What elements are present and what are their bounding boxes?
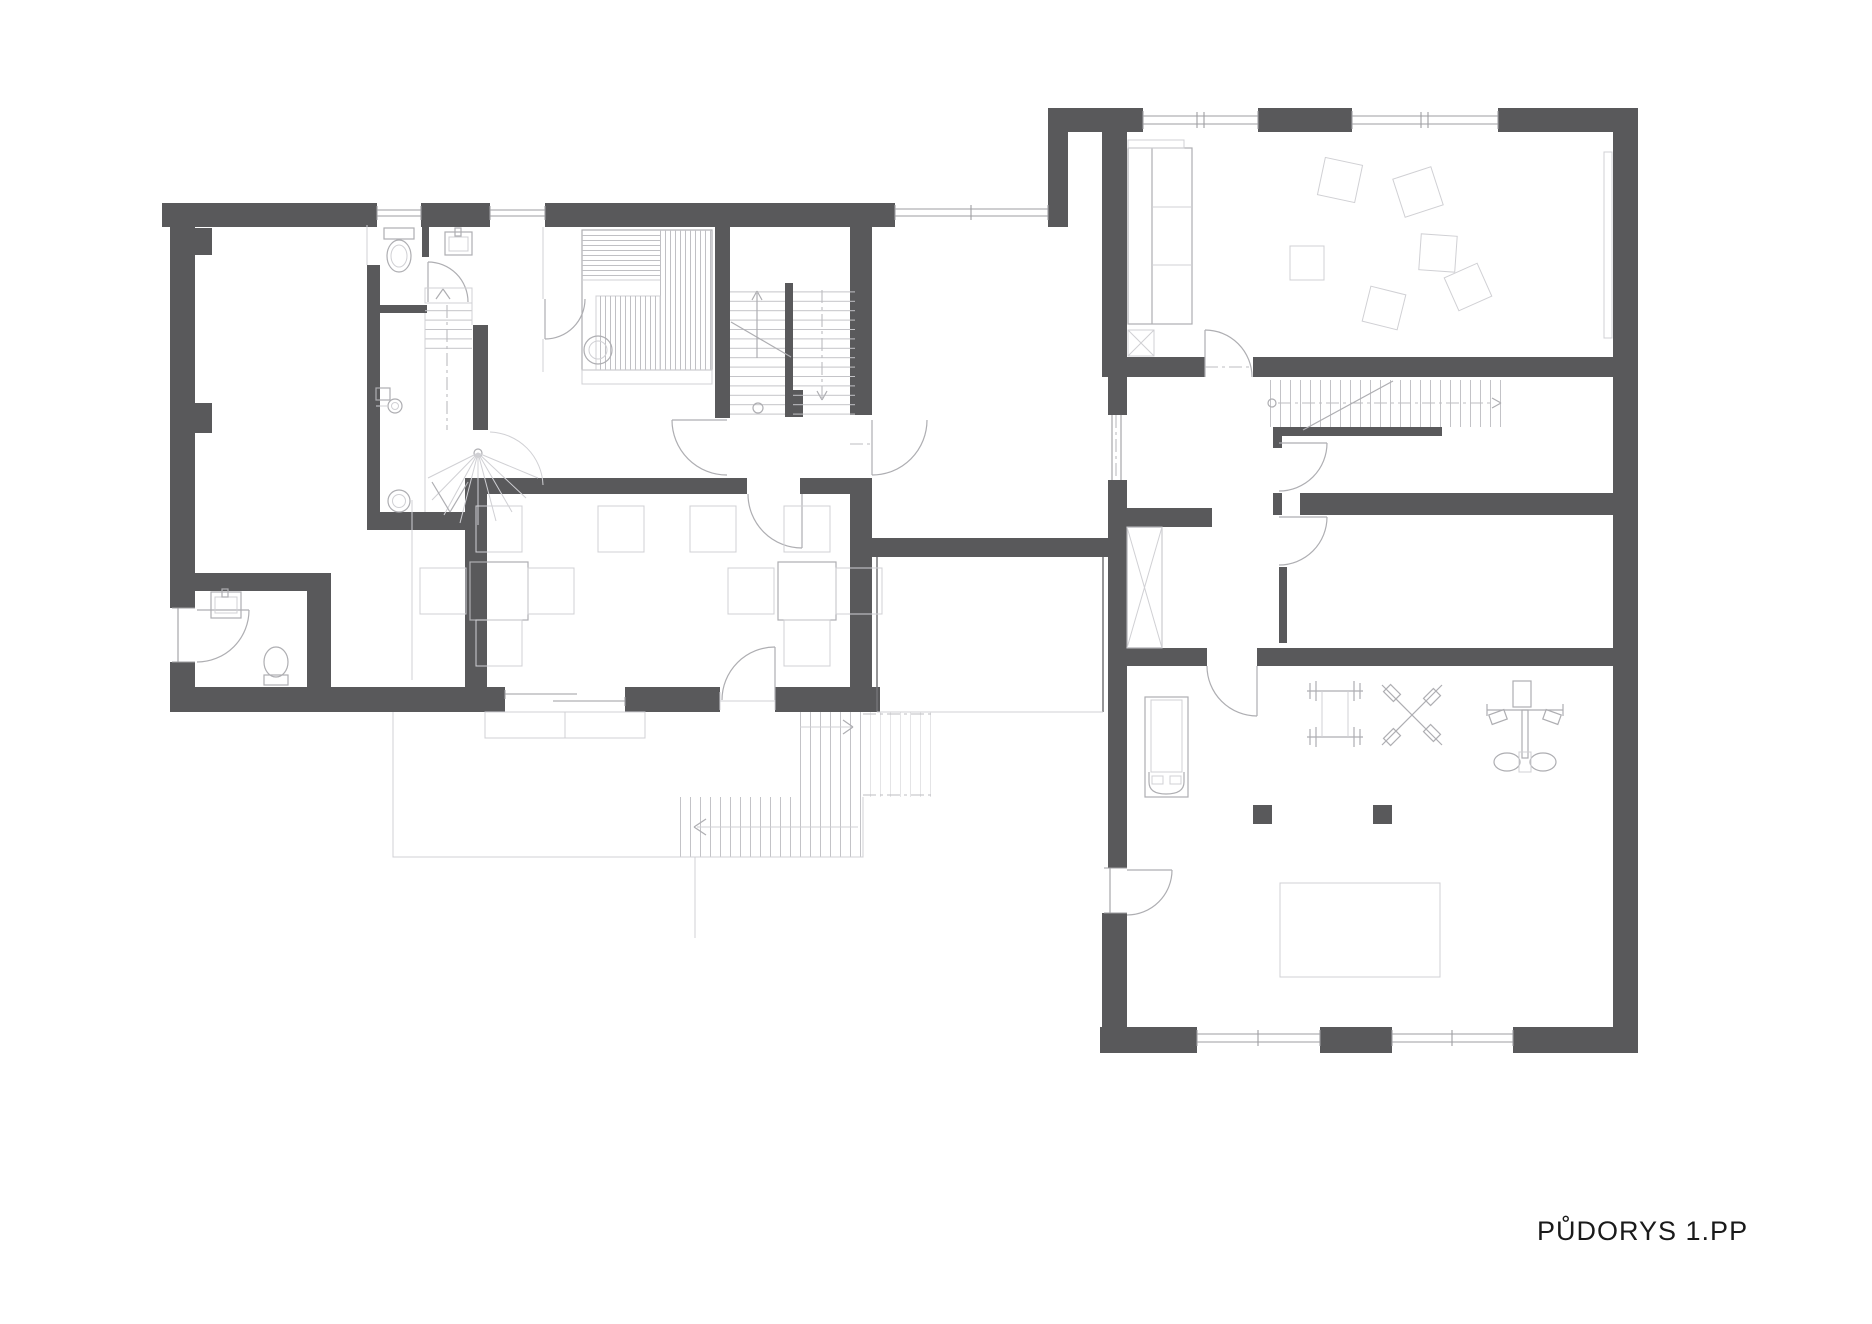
dumbbell-rack-icon [1307,681,1363,747]
playroom-furniture [1128,140,1612,356]
hall-wardrobe [1127,527,1162,648]
radiator [1604,152,1612,338]
boiler-icon [388,490,410,512]
courtyard-lightwell [877,557,1103,712]
terrace-door-frame [720,692,775,710]
sink-icon [211,589,241,618]
sauna [543,227,712,384]
dining-table [778,562,836,620]
stair-right-wing [1266,380,1508,430]
window-top-left-1 [377,206,421,220]
sink-icon [445,228,472,255]
floor-plan-page: PŮDORYS 1.PP [0,0,1872,1324]
exercise-machine-icon [1487,681,1563,772]
door-stairhall-left [672,420,727,475]
sofa [1128,140,1192,324]
window-corridor-north [895,205,1048,220]
window-playroom-north-1 [1143,111,1258,129]
windows [172,111,1513,1046]
window-playroom-north-2 [1352,111,1498,129]
door-room-b [1279,517,1327,565]
window-gym-south-2 [1392,1030,1513,1046]
gym-west-door-frame [1104,868,1127,913]
sliding-terrace-door [505,690,625,706]
window-gym-south-1 [1197,1030,1320,1046]
door-hall-stair-corridor [1279,443,1327,491]
floor-plan-drawing: PŮDORYS 1.PP [0,0,1872,1324]
door-dining [748,494,802,548]
wc-exterior-door-frame [172,608,195,662]
toilet-icon [384,228,414,272]
walls-left-wing [162,203,1110,712]
stair-outdoor [675,712,935,857]
toilet-icon [264,647,288,685]
gym-column [1253,805,1272,824]
door-dining-terrace [722,647,775,700]
entry-glazing-west [1112,415,1121,480]
barbells-crossed-icon [1382,685,1442,746]
door-stairhall-right [850,420,927,475]
treadmill-icon [1145,697,1188,797]
walls-right-wing [1048,108,1638,1053]
side-table [1128,330,1154,356]
door-gym-west [1127,870,1172,915]
bathroom-fixtures [367,225,472,512]
gym-mat [1280,883,1440,977]
plan-title-label: PŮDORYS 1.PP [1537,1214,1748,1246]
gym-equipment [1145,681,1563,977]
gym-column [1373,805,1392,824]
play-mats [1290,157,1492,329]
door-sauna [545,299,585,339]
door-gym-main [1207,666,1257,716]
door-playroom [1205,330,1252,377]
wc-fixtures [211,589,288,685]
window-top-left-2 [490,206,545,220]
